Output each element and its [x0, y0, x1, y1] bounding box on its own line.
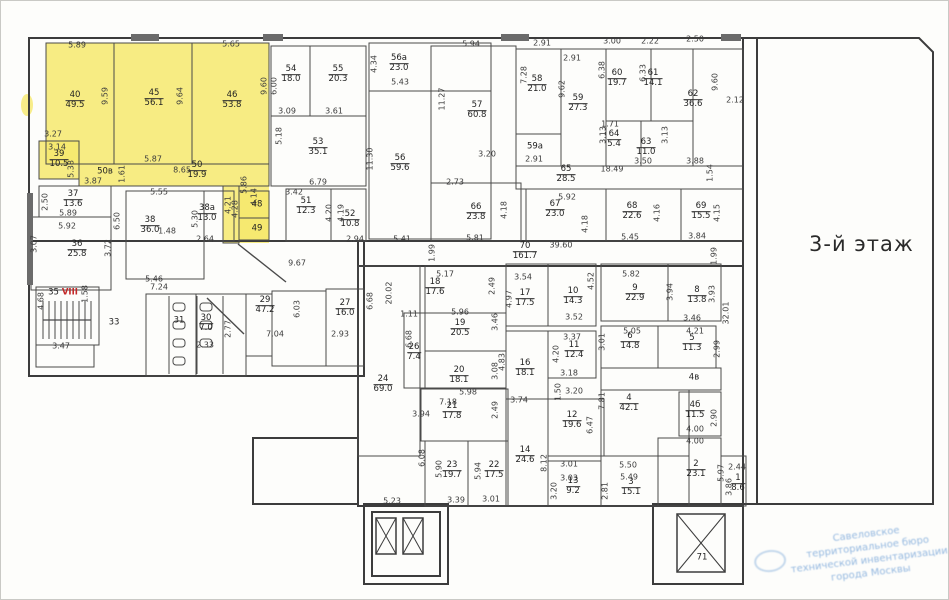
dimension-label: 20.02 [385, 282, 394, 305]
room-label-45: 4556.1 [145, 89, 164, 109]
room-label-38а: 38а13.0 [198, 204, 217, 224]
dimension-label: 3.47 [52, 342, 70, 351]
dimension-label: 6.00 [270, 77, 279, 95]
room-label-66: 6623.8 [467, 203, 486, 223]
dimension-label: 4.00 [686, 437, 704, 446]
room-label-52: 5210.8 [341, 210, 360, 230]
dimension-label: 4.34 [370, 55, 379, 73]
dimension-label: 5.55 [150, 188, 168, 197]
dimension-label: 9.59 [101, 87, 110, 105]
dimension-label: 2.73 [446, 178, 464, 187]
dimension-label: 5.50 [619, 461, 637, 470]
room-label-2: 223.1 [687, 460, 706, 480]
dimension-label: 2.49 [488, 277, 497, 295]
dimension-label: 2.93 [331, 330, 349, 339]
room-label-4в: 4в [688, 373, 700, 382]
room-label-51: 5112.3 [297, 197, 316, 217]
room-label-49: 49 [251, 224, 264, 233]
dimension-label: 6.50 [113, 212, 122, 230]
room-label-31: 31 [173, 316, 186, 325]
room-label-8: 813.8 [688, 286, 707, 306]
dimension-label: 2.81 [601, 482, 610, 500]
dimension-label: 3.46 [491, 313, 500, 331]
dimension-label: 2.50 [686, 35, 704, 44]
floorplan: 4049.54556.14653.83910.550в5019.94849541… [1, 1, 949, 600]
room-label-4б: 4б11.5 [686, 401, 705, 421]
dimension-label: 3.01 [598, 333, 607, 351]
dimension-label: 3.74 [510, 396, 528, 405]
dimension-label: 3.09 [278, 107, 296, 116]
room-label-67: 6723.0 [546, 200, 565, 220]
dimension-label: 2.33 [196, 341, 214, 350]
dimension-label: 9.62 [558, 80, 567, 98]
dimension-label: 3.94 [412, 410, 430, 419]
room-label-35: 35 VIII [47, 288, 79, 297]
dimension-label: 3.01 [560, 460, 578, 469]
dimension-label: 5.87 [144, 155, 162, 164]
dimension-label: 39.60 [550, 241, 573, 250]
dimension-label: 1.50 [554, 383, 563, 401]
dimension-label: 4.20 [325, 204, 334, 222]
dimension-label: 5.23 [383, 497, 401, 506]
dimension-label: 3.18 [560, 369, 578, 378]
dimension-label: 5.81 [466, 234, 484, 243]
dimension-label: 7.04 [266, 330, 284, 339]
dimension-label: 4.00 [686, 425, 704, 434]
room-label-56: 5659.6 [391, 154, 410, 174]
dimension-label: 2.49 [491, 401, 500, 419]
dimension-label: 9.67 [288, 259, 306, 268]
dimension-label: 5.41 [393, 235, 411, 244]
dimension-label: 9.60 [260, 77, 269, 95]
dimension-label: 3.61 [325, 107, 343, 116]
room-label-13: 139.2 [566, 477, 580, 497]
dimension-label: 4.18 [581, 215, 590, 233]
dimension-label: 4.52 [587, 272, 596, 290]
floor-title: 3-й этаж [809, 232, 914, 256]
dimension-label: 3.50 [634, 157, 652, 166]
dimension-label: 3.87 [84, 177, 102, 186]
room-label-14: 1424.6 [516, 446, 535, 466]
dimension-label: 32.01 [722, 302, 731, 325]
dimension-label: 3.54 [514, 273, 532, 282]
room-label-48: 48 [251, 200, 264, 209]
room-label-50в: 50в [96, 167, 114, 176]
room-label-21: 2117.8 [443, 402, 462, 422]
dimension-label: 3.84 [688, 232, 706, 241]
dimension-label: 3.20 [565, 387, 583, 396]
dimension-label: 5.98 [459, 388, 477, 397]
dimension-label: 1.54 [706, 164, 715, 182]
room-label-9: 922.9 [626, 284, 645, 304]
dimension-label: 6.79 [309, 178, 327, 187]
room-label-26: 267.4 [407, 343, 421, 363]
dimension-label: 4.20 [552, 345, 561, 363]
dimension-label: 2.50 [41, 193, 50, 211]
dimension-label: 3.20 [478, 150, 496, 159]
dimension-label: 4.83 [498, 353, 507, 371]
dimension-label: 1.11 [400, 310, 418, 319]
room-label-29: 2947.2 [256, 296, 275, 316]
dimension-label: 3.46 [683, 314, 701, 323]
room-label-40: 4049.5 [66, 91, 85, 111]
room-label-65: 6528.5 [557, 165, 576, 185]
dimension-label: 1.58 [81, 285, 90, 303]
dimension-label: 2.91 [533, 39, 551, 48]
dimension-label: 6.47 [586, 416, 595, 434]
dimension-label: 1.99 [710, 247, 719, 265]
dimension-label: 3.94 [666, 283, 675, 301]
room-label-63: 6311.0 [637, 138, 656, 158]
dimension-label: 4.97 [505, 290, 514, 308]
room-label-24: 2469.0 [374, 375, 393, 395]
dimension-label: 3.93 [708, 285, 717, 303]
dimension-label: 3.72 [104, 239, 113, 257]
room-label-59: 5927.3 [569, 94, 588, 114]
dimension-label: 2.77 [224, 320, 233, 338]
dimension-label: 2.12 [726, 96, 744, 105]
room-label-12: 1219.6 [563, 411, 582, 431]
dimension-label: 5.89 [68, 41, 86, 50]
room-label-20: 2018.1 [450, 366, 469, 386]
room-label-70: 70161.7 [513, 242, 537, 262]
dimension-label: 3.39 [447, 496, 465, 505]
dimension-label: 5.86 [240, 176, 249, 194]
room-label-37: 3713.6 [64, 190, 83, 210]
dimension-label: 5.18 [275, 127, 284, 145]
dimension-label: 3.42 [285, 188, 303, 197]
room-label-30: 307.0 [199, 314, 213, 334]
room-label-11: 1112.4 [565, 341, 584, 361]
dimension-label: 5.96 [451, 308, 469, 317]
room-label-56а: 56а23.0 [390, 54, 409, 74]
room-label-5: 511.3 [683, 334, 702, 354]
room-label-59а: 59а [526, 142, 544, 151]
room-label-69: 6915.5 [692, 202, 711, 222]
dimension-label: 3.52 [565, 313, 583, 322]
dimension-label: 2.44 [728, 463, 746, 472]
dimension-label: 8.12 [540, 454, 549, 472]
room-label-53: 5335.1 [309, 138, 328, 158]
dimension-label: 5.89 [59, 209, 77, 218]
dimension-label: 2.99 [713, 340, 722, 358]
room-label-39: 3910.5 [50, 150, 69, 170]
room-label-50: 5019.9 [188, 161, 207, 181]
room-label-3: 315.1 [622, 478, 641, 498]
dimension-label: 4.28 [231, 200, 240, 218]
dimension-label: 4.68 [37, 292, 46, 310]
dimension-label: 7.24 [150, 283, 168, 292]
dimension-label: 2.91 [563, 54, 581, 63]
dimension-label: 4.15 [713, 204, 722, 222]
dimension-label: 3.07 [30, 235, 39, 253]
dimension-label: 5.92 [58, 222, 76, 231]
dimension-label: 3.13 [599, 126, 608, 144]
dimension-label: 6.08 [418, 449, 427, 467]
room-label-10: 1014.3 [564, 287, 583, 307]
dimension-label: 3.20 [550, 482, 559, 500]
dimension-label: 4.16 [653, 204, 662, 222]
room-label-22: 2217.5 [485, 461, 504, 481]
dimension-label: 5.43 [391, 78, 409, 87]
room-label-36: 3625.8 [68, 240, 87, 260]
room-label-60: 6019.7 [608, 69, 627, 89]
dimension-label: 2.91 [525, 155, 543, 164]
room-label-18: 1817.6 [426, 278, 445, 298]
dimension-label: 9.60 [711, 73, 720, 91]
dimension-label: 3.88 [686, 157, 704, 166]
room-label-62: 6236.6 [684, 90, 703, 110]
dimension-label: 5.65 [222, 40, 240, 49]
dimension-label: 6.68 [366, 292, 375, 310]
room-label-58: 5821.0 [528, 75, 547, 95]
dimension-label: 1.99 [428, 244, 437, 262]
dimension-label: 18.49 [601, 165, 624, 174]
dimension-label: 5.94 [462, 40, 480, 49]
dimension-label: 6.03 [293, 300, 302, 318]
room-label-71: 71 [696, 553, 709, 562]
room-label-33: 33 [108, 318, 121, 327]
dimension-label: 6.38 [598, 61, 607, 79]
dimension-label: 3.01 [482, 495, 500, 504]
room-label-61: 6114.1 [644, 69, 663, 89]
room-label-19: 1920.5 [451, 319, 470, 339]
room-label-6: 614.8 [621, 332, 640, 352]
room-label-38: 3836.0 [141, 216, 160, 236]
room-label-27: 2716.0 [336, 299, 355, 319]
dimension-label: 4.18 [500, 201, 509, 219]
room-label-55: 5520.3 [329, 65, 348, 85]
dimension-label: 3.27 [44, 130, 62, 139]
room-label-46: 4653.8 [223, 91, 242, 111]
dimension-label: 3.00 [603, 37, 621, 46]
dimension-label: 2.90 [710, 409, 719, 427]
room-label-23: 2319.7 [443, 461, 462, 481]
floorplan-page: 4049.54556.14653.83910.550в5019.94849541… [0, 0, 949, 600]
dimension-label: 9.64 [176, 87, 185, 105]
dimension-label: 2.22 [641, 37, 659, 46]
dimension-label: 5.45 [621, 233, 639, 242]
dimension-label: 5.82 [622, 270, 640, 279]
dimension-label: 2.94 [346, 235, 364, 244]
dimension-label: 1.48 [158, 227, 176, 236]
room-label-16: 1618.1 [516, 359, 535, 379]
dimension-label: 11.27 [438, 88, 447, 111]
dimension-label: 11.30 [366, 148, 375, 171]
room-label-64: 645.4 [607, 130, 621, 150]
dimension-label: 3.13 [661, 126, 670, 144]
dimension-label: 2.64 [196, 235, 214, 244]
room-label-17: 1717.5 [516, 289, 535, 309]
room-label-57: 5760.8 [468, 101, 487, 121]
dimension-label: 1.61 [118, 165, 127, 183]
dimension-label: 7.81 [598, 392, 607, 410]
room-label-54: 5418.0 [282, 65, 301, 85]
room-label-1: 18.6 [731, 474, 745, 494]
room-label-68: 6822.6 [623, 202, 642, 222]
dimension-label: 5.94 [474, 462, 483, 480]
room-label-4: 442.1 [620, 394, 639, 414]
